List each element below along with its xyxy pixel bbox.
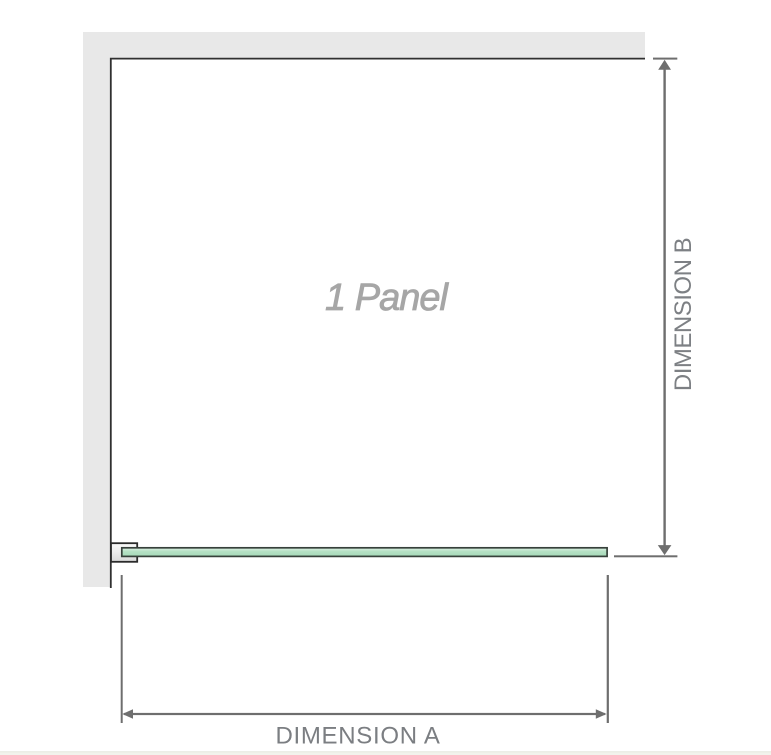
svg-text:1 Panel: 1 Panel bbox=[325, 277, 449, 319]
svg-text:DIMENSION B: DIMENSION B bbox=[670, 238, 697, 391]
svg-text:DIMENSION A: DIMENSION A bbox=[275, 723, 440, 750]
